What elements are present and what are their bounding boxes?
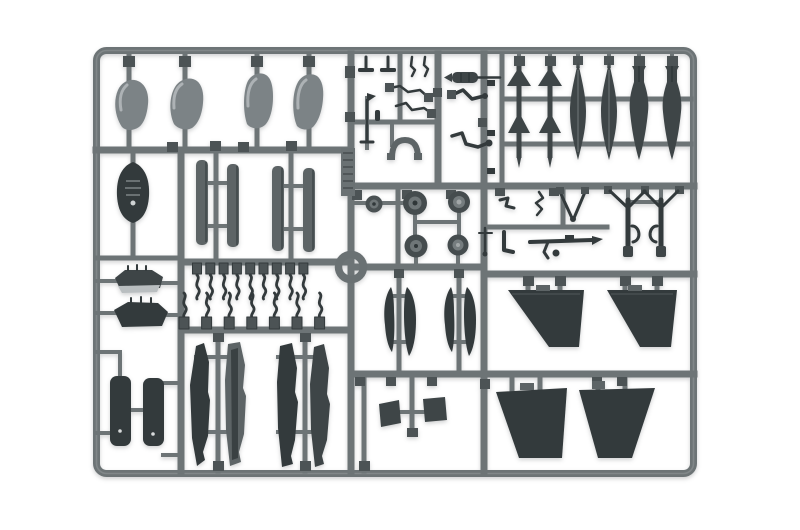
flap-part [379,400,401,427]
wheel-part [448,235,469,256]
wheel-part [405,235,428,258]
fin-blade-part [384,287,394,352]
pylon-half-part [190,343,210,466]
nose-cone-part [117,162,149,223]
pylon-half-part [277,343,298,467]
flap-part [423,397,447,422]
wheel-part [448,191,470,213]
wing-panel-part [607,290,677,347]
wing-panel-part [496,388,567,458]
wing-panel-part [579,388,655,458]
pylon-half-parts [190,342,330,467]
cockpit-small-parts [358,57,500,174]
spine-fairing-parts [114,265,168,327]
canopy-parts [115,73,323,130]
fin-blade-part [404,287,416,356]
pylon-half-part [310,344,330,467]
fin-blade-part [464,287,476,356]
ordnance-parts [507,62,681,168]
photo-canvas [0,0,800,530]
wheel-part [366,196,383,213]
missile-part [507,66,531,168]
wheel-parts [366,191,493,258]
gear-door-part [110,376,131,446]
wheel-part [403,191,427,215]
missile-part [538,66,562,168]
spine-fairing-part [114,302,168,327]
wing-panel-part [508,290,584,347]
gear-door-part [143,378,164,446]
fin-blade-part [444,287,454,352]
sprue [96,51,694,474]
linkage-parts [500,187,603,258]
s-hook-parts-rows [179,263,325,329]
sprue-photo [0,0,800,530]
gun-part [530,235,603,258]
mold-text-tag [341,148,355,196]
s-hook-row-top [193,263,308,299]
